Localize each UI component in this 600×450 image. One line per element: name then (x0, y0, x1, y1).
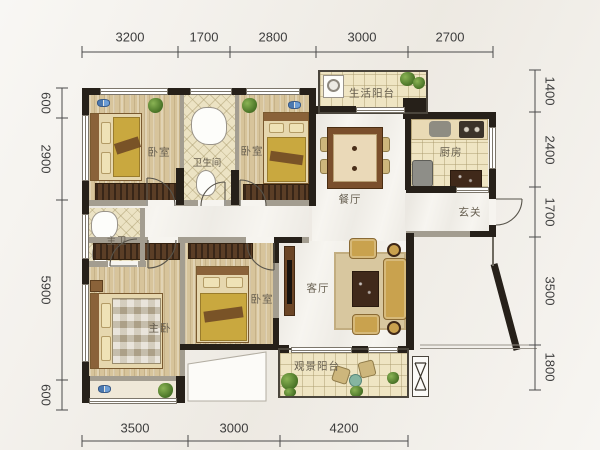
window (100, 88, 168, 95)
wall (470, 231, 496, 237)
dim-bottom-2: 3000 (220, 421, 249, 436)
label-dining: 餐厅 (339, 192, 362, 207)
dim-top-4: 3000 (348, 30, 377, 45)
service-balcony-sliding-door (356, 107, 405, 113)
wall (176, 168, 184, 205)
wardrobe (95, 183, 178, 201)
slippers (288, 101, 301, 109)
kitchen-window (489, 127, 496, 169)
door-opening (240, 200, 266, 206)
slippers (97, 99, 110, 107)
window (190, 88, 232, 95)
door-opening (246, 237, 274, 243)
door-opening (198, 200, 226, 206)
dim-right-1: 1400 (543, 77, 558, 106)
ac-outdoor-unit (412, 356, 429, 397)
armchair (349, 238, 377, 259)
side-table (387, 321, 401, 335)
wall (273, 262, 279, 318)
wall-kitchen-bottom (406, 186, 456, 193)
wall-bay-post (176, 376, 185, 403)
kitchen-sliding-door (456, 187, 489, 193)
pillow (101, 122, 111, 144)
table-decor (352, 166, 357, 171)
wall-kitchen-left (405, 119, 411, 190)
window (246, 88, 300, 95)
dim-right-5: 1800 (543, 353, 558, 382)
wall (180, 243, 185, 376)
label-bedroom-top-left: 卧室 (148, 145, 171, 160)
dim-right-2: 2400 (543, 136, 558, 165)
dim-top-3: 2800 (259, 30, 288, 45)
shower (191, 107, 227, 145)
wall (140, 208, 145, 264)
pillow (203, 277, 220, 288)
label-living: 客厅 (307, 281, 330, 296)
door-opening (108, 261, 138, 267)
nightstand (90, 280, 103, 292)
bay-window (89, 398, 177, 404)
label-master-bedroom: 主卧 (149, 321, 172, 336)
wardrobe (188, 243, 253, 259)
pillow (226, 277, 243, 288)
wall-living-right (406, 233, 414, 350)
kitchen-sink (429, 121, 451, 137)
wall (273, 241, 279, 263)
label-kitchen: 厨房 (440, 145, 463, 160)
dim-left-4: 600 (39, 384, 54, 406)
pillow (289, 123, 304, 133)
side-table (387, 243, 401, 257)
bed (196, 266, 249, 343)
label-master-bath: 主卫 (106, 233, 127, 247)
sofa (383, 258, 407, 320)
label-bedroom-top-mid: 卧室 (241, 144, 264, 159)
label-bathroom: 卫生间 (193, 155, 222, 169)
dim-top-1: 3200 (116, 30, 145, 45)
window (82, 214, 89, 259)
pillow (101, 303, 111, 328)
table-decor (352, 146, 357, 151)
dim-right-4: 3500 (543, 277, 558, 306)
dim-bottom-3: 4200 (330, 421, 359, 436)
exterior-area (188, 352, 266, 401)
bed-headboard (91, 294, 99, 368)
label-service-balcony: 生活阳台 (349, 86, 395, 101)
window (82, 115, 89, 181)
balcony-sliding-door (291, 347, 352, 353)
wall-bedroom-bottom (180, 344, 279, 350)
dim-top-2: 1700 (190, 30, 219, 45)
wall (89, 376, 178, 381)
door-opening (146, 200, 176, 206)
dim-right-3: 1700 (543, 198, 558, 227)
pillow (269, 123, 284, 133)
dim-left-3: 5900 (39, 276, 54, 305)
balcony-sliding-door (368, 347, 398, 353)
kitchen-stove (459, 121, 484, 138)
label-view-balcony: 观景阳台 (294, 359, 340, 374)
bed-headboard (264, 113, 308, 121)
pillow (101, 152, 111, 174)
bed-headboard (197, 267, 248, 275)
refrigerator (412, 160, 433, 187)
label-bedroom-bottom: 卧室 (251, 292, 274, 307)
dim-left-2: 2900 (39, 145, 54, 174)
bed-headboard (91, 114, 99, 180)
wardrobe (243, 184, 309, 201)
slippers (98, 385, 111, 393)
dim-bottom-1: 3500 (121, 421, 150, 436)
wall (231, 170, 239, 205)
entry-door-opening (489, 199, 496, 225)
dining-table-top (333, 134, 377, 182)
armchair (352, 314, 380, 335)
toilet (196, 170, 216, 196)
tv-screen (287, 260, 292, 304)
door-opening (148, 237, 178, 243)
bed (90, 113, 142, 181)
window (82, 284, 89, 362)
bed (263, 112, 309, 184)
dim-top-5: 2700 (436, 30, 465, 45)
pillow (101, 336, 111, 361)
coffee-table (352, 271, 379, 307)
label-entry: 玄关 (459, 205, 482, 220)
floor-plan: 卧室 卫生间 卧室 生活阳台 厨房 餐厅 玄关 主卫 主卧 卧室 客厅 观景阳台… (0, 0, 600, 450)
dim-left-1: 600 (39, 92, 54, 114)
diagonal-wall (494, 264, 517, 350)
